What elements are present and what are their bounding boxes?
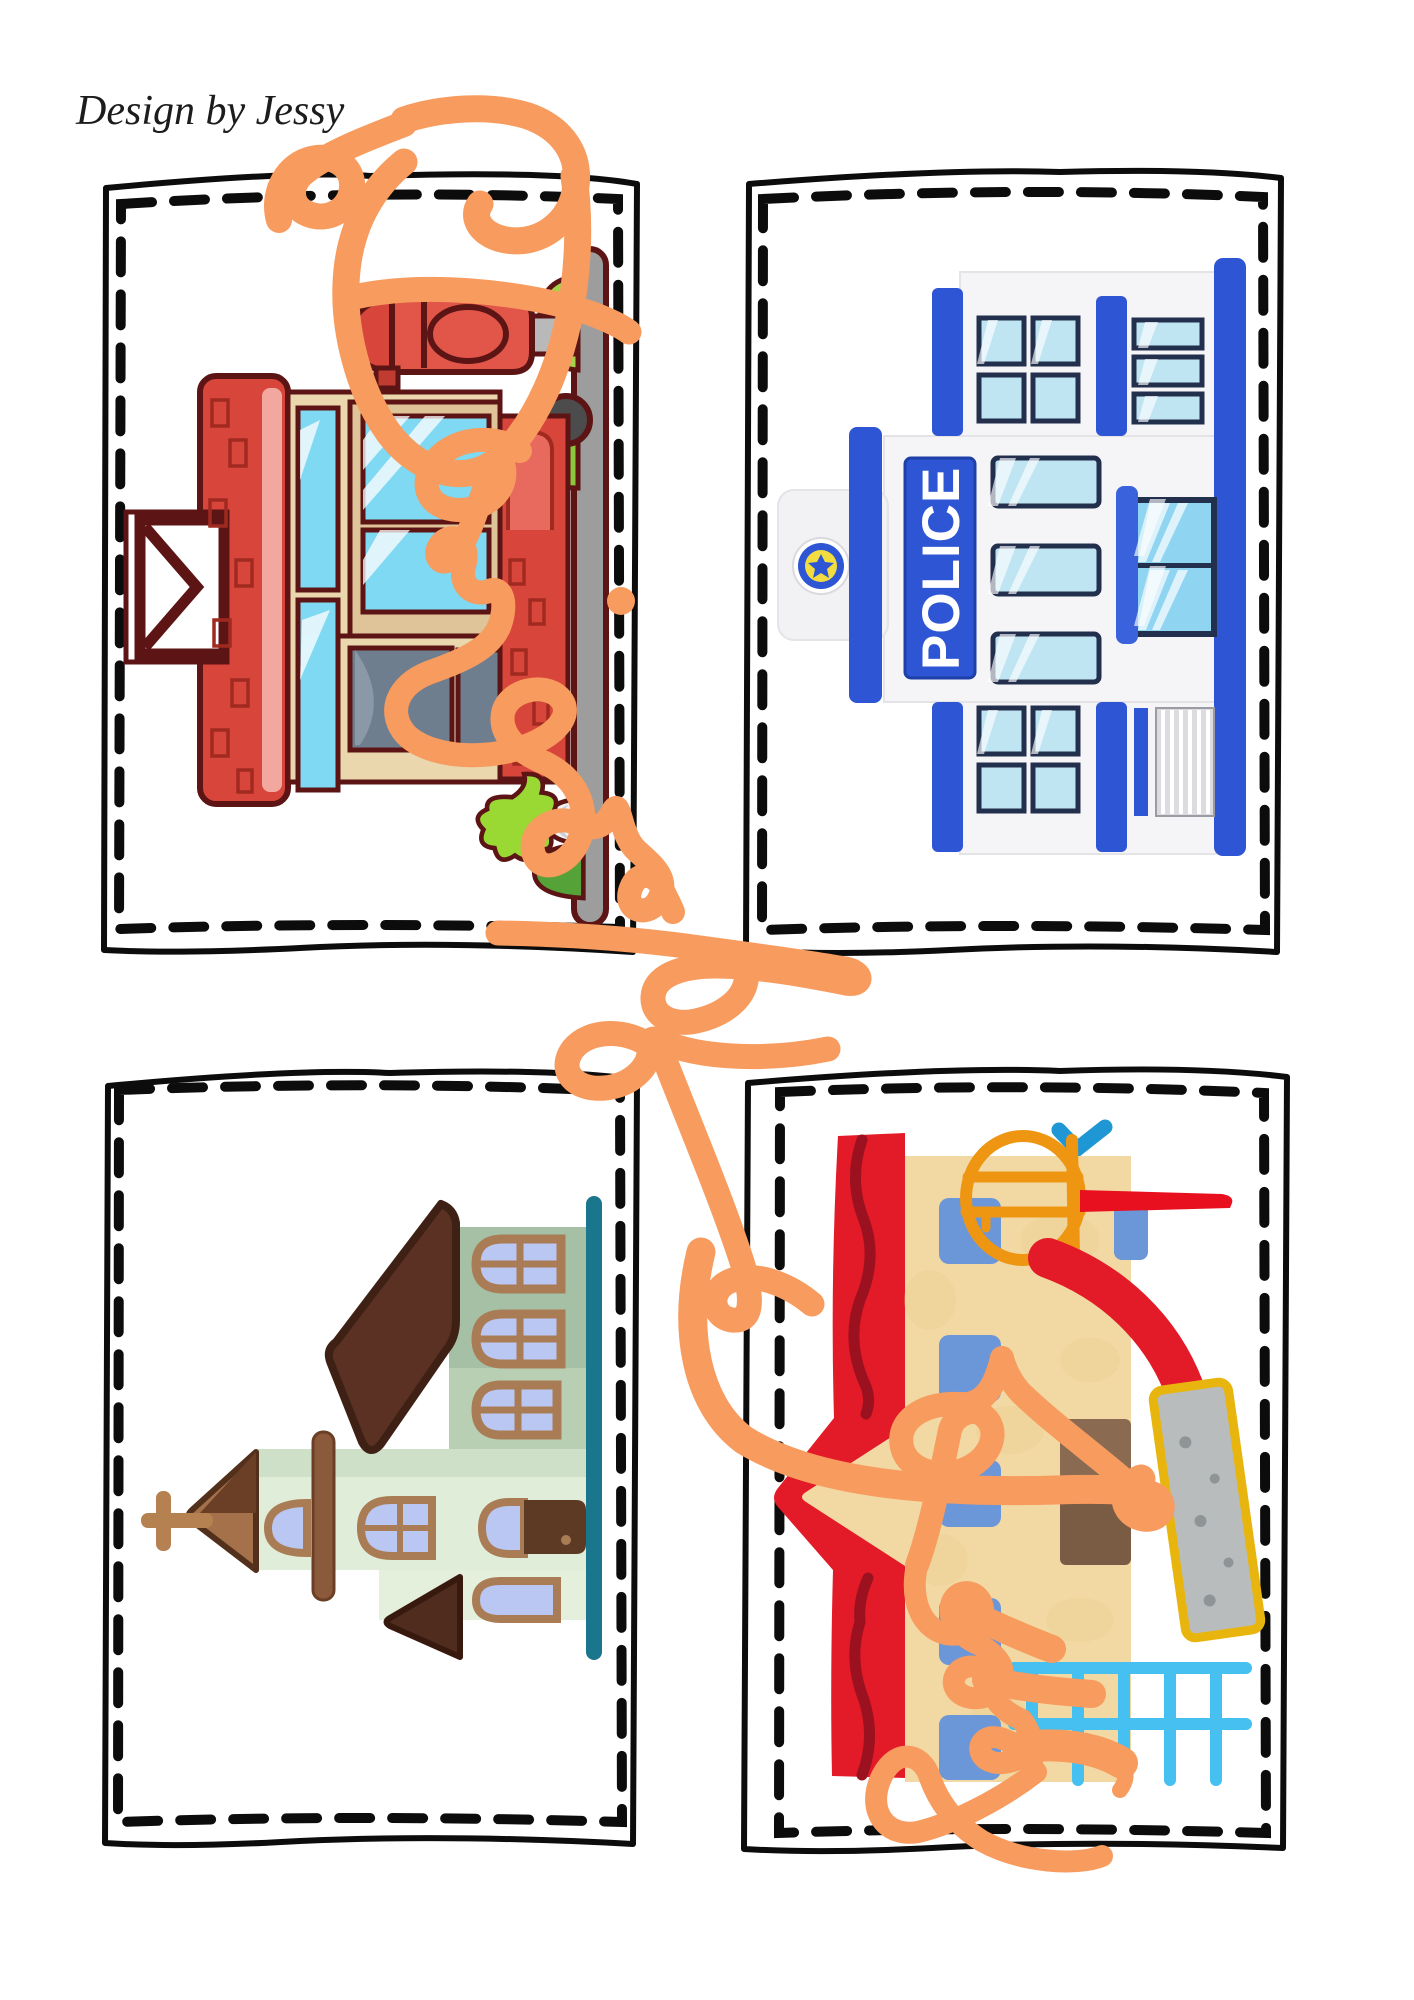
svg-text:POLICE: POLICE (912, 467, 971, 670)
svg-text:Design by Jessy: Design by Jessy (75, 88, 345, 134)
